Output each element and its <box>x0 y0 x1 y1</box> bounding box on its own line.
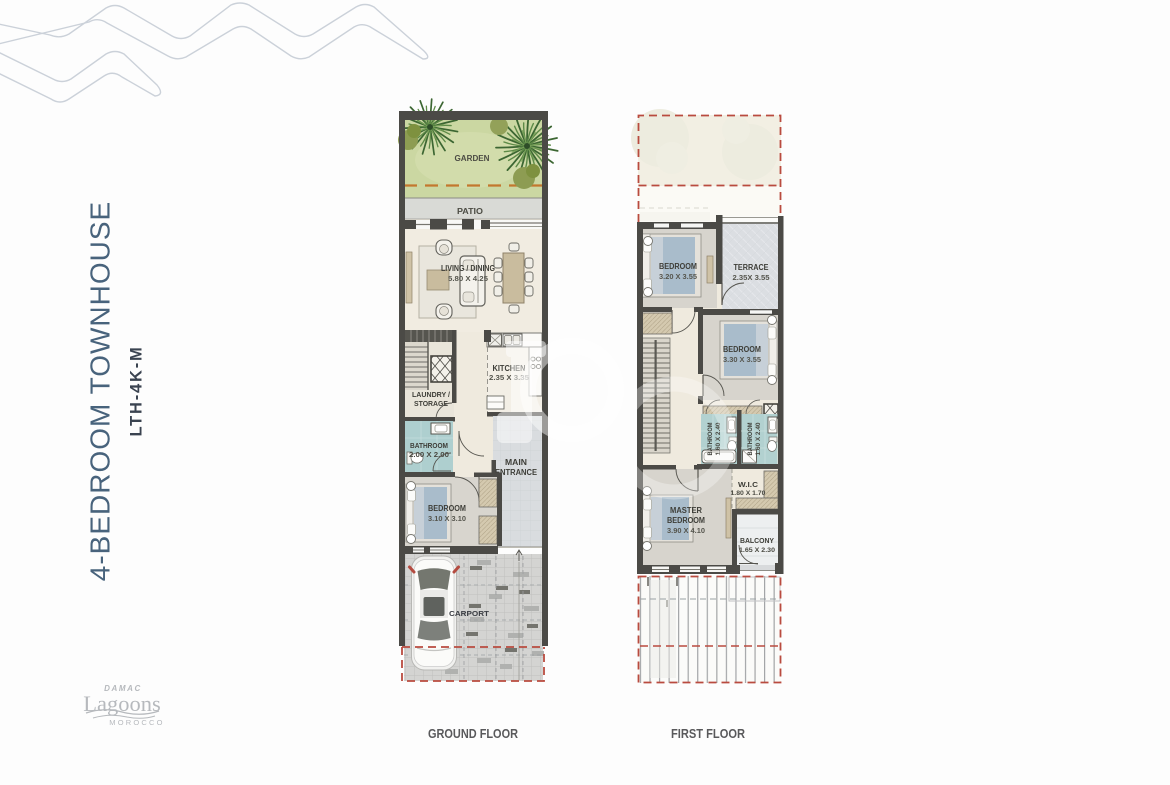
svg-text:1.60 X 2.40: 1.60 X 2.40 <box>755 422 762 455</box>
svg-text:PATIO: PATIO <box>457 207 483 216</box>
svg-text:TERRACE: TERRACE <box>734 263 769 272</box>
svg-text:1.65 X 2.30: 1.65 X 2.30 <box>739 547 775 554</box>
svg-text:LIVING / DINING: LIVING / DINING <box>441 264 495 273</box>
svg-text:2.35X 3.55: 2.35X 3.55 <box>733 273 770 282</box>
svg-text:4-BEDROOM TOWNHOUSE: 4-BEDROOM TOWNHOUSE <box>85 201 116 581</box>
svg-text:2.00 X 2.00: 2.00 X 2.00 <box>409 452 449 459</box>
svg-text:BEDROOM: BEDROOM <box>659 262 697 271</box>
svg-text:MOROCCO: MOROCCO <box>109 718 164 727</box>
svg-text:GARDEN: GARDEN <box>455 154 490 163</box>
svg-text:BEDROOM: BEDROOM <box>667 516 705 525</box>
svg-text:1.80 X 1.70: 1.80 X 1.70 <box>731 490 766 497</box>
svg-text:BEDROOM: BEDROOM <box>723 345 761 354</box>
svg-text:5.80 X 4.25: 5.80 X 4.25 <box>448 274 488 283</box>
svg-text:BATHROOM: BATHROOM <box>747 422 754 455</box>
svg-text:3.90 X 4.10: 3.90 X 4.10 <box>667 526 705 535</box>
svg-text:BATHROOM: BATHROOM <box>707 422 714 455</box>
svg-text:3.10 X 3.10: 3.10 X 3.10 <box>428 514 466 523</box>
svg-text:BEDROOM: BEDROOM <box>428 504 466 513</box>
svg-text:W.I.C: W.I.C <box>738 480 758 489</box>
svg-text:3.30 X 3.55: 3.30 X 3.55 <box>723 355 761 364</box>
svg-text:STORAGE: STORAGE <box>414 399 448 408</box>
svg-text:BATHROOM: BATHROOM <box>410 441 448 450</box>
svg-text:BALCONY: BALCONY <box>740 536 774 545</box>
svg-text:FIRST FLOOR: FIRST FLOOR <box>671 726 746 741</box>
svg-text:LTH-4K-M: LTH-4K-M <box>128 345 146 436</box>
svg-text:CARPORT: CARPORT <box>449 609 489 618</box>
svg-text:MASTER: MASTER <box>670 506 702 515</box>
svg-text:LAUNDRY /: LAUNDRY / <box>412 390 451 399</box>
svg-text:3.20 X 3.55: 3.20 X 3.55 <box>659 272 697 281</box>
svg-text:GROUND FLOOR: GROUND FLOOR <box>428 726 519 741</box>
svg-text:MAIN: MAIN <box>505 458 527 467</box>
